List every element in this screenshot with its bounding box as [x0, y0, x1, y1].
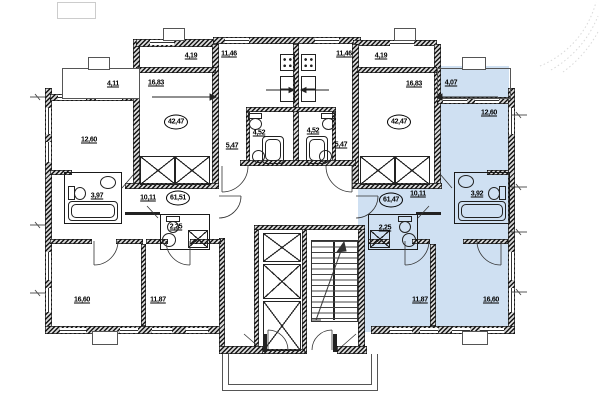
area-label: 16,83: [148, 80, 164, 87]
area-label: 3,97: [91, 193, 103, 200]
area-label: 10,11: [140, 195, 156, 202]
door-arrows: [152, 88, 498, 101]
area-label: 11,87: [412, 297, 428, 304]
area-label: 11,87: [150, 297, 166, 304]
area-label: 16,60: [74, 297, 90, 304]
area-label: 4,19: [375, 53, 387, 60]
area-label: 4,11: [107, 81, 119, 88]
stair-direction-arrow: [311, 242, 346, 320]
area-label: 11,46: [221, 51, 237, 58]
area-label: 16,83: [406, 81, 422, 88]
area-label: 4,52: [307, 128, 319, 135]
area-label: 10,11: [410, 191, 426, 198]
area-label: 2,25: [170, 224, 182, 231]
apartment-total-label: 42,47: [387, 115, 411, 130]
floor-plan: 4,11 16,83 4,19 11,46 11,46 4,19 16,83 4…: [0, 0, 600, 400]
apartment-total-label: 42,47: [164, 115, 188, 130]
area-label: 5,47: [226, 143, 238, 150]
area-label: 12,60: [481, 110, 497, 117]
area-label: 2,25: [379, 225, 391, 232]
area-label: 4,52: [253, 130, 265, 137]
area-label: 16,60: [483, 297, 499, 304]
area-label: 5,47: [335, 142, 347, 149]
area-label: 12,60: [81, 137, 97, 144]
apartment-total-label: 61,51: [166, 191, 190, 206]
apartment-total-label: 61,47: [379, 193, 403, 208]
area-label: 4,07: [445, 80, 457, 87]
dimension-ticks: [30, 94, 527, 296]
area-label: 4,19: [185, 53, 197, 60]
area-label: 3,92: [471, 191, 483, 198]
watermark-arc: [540, 2, 599, 72]
area-label: 11,46: [336, 51, 352, 58]
plan-linework: [0, 0, 600, 400]
